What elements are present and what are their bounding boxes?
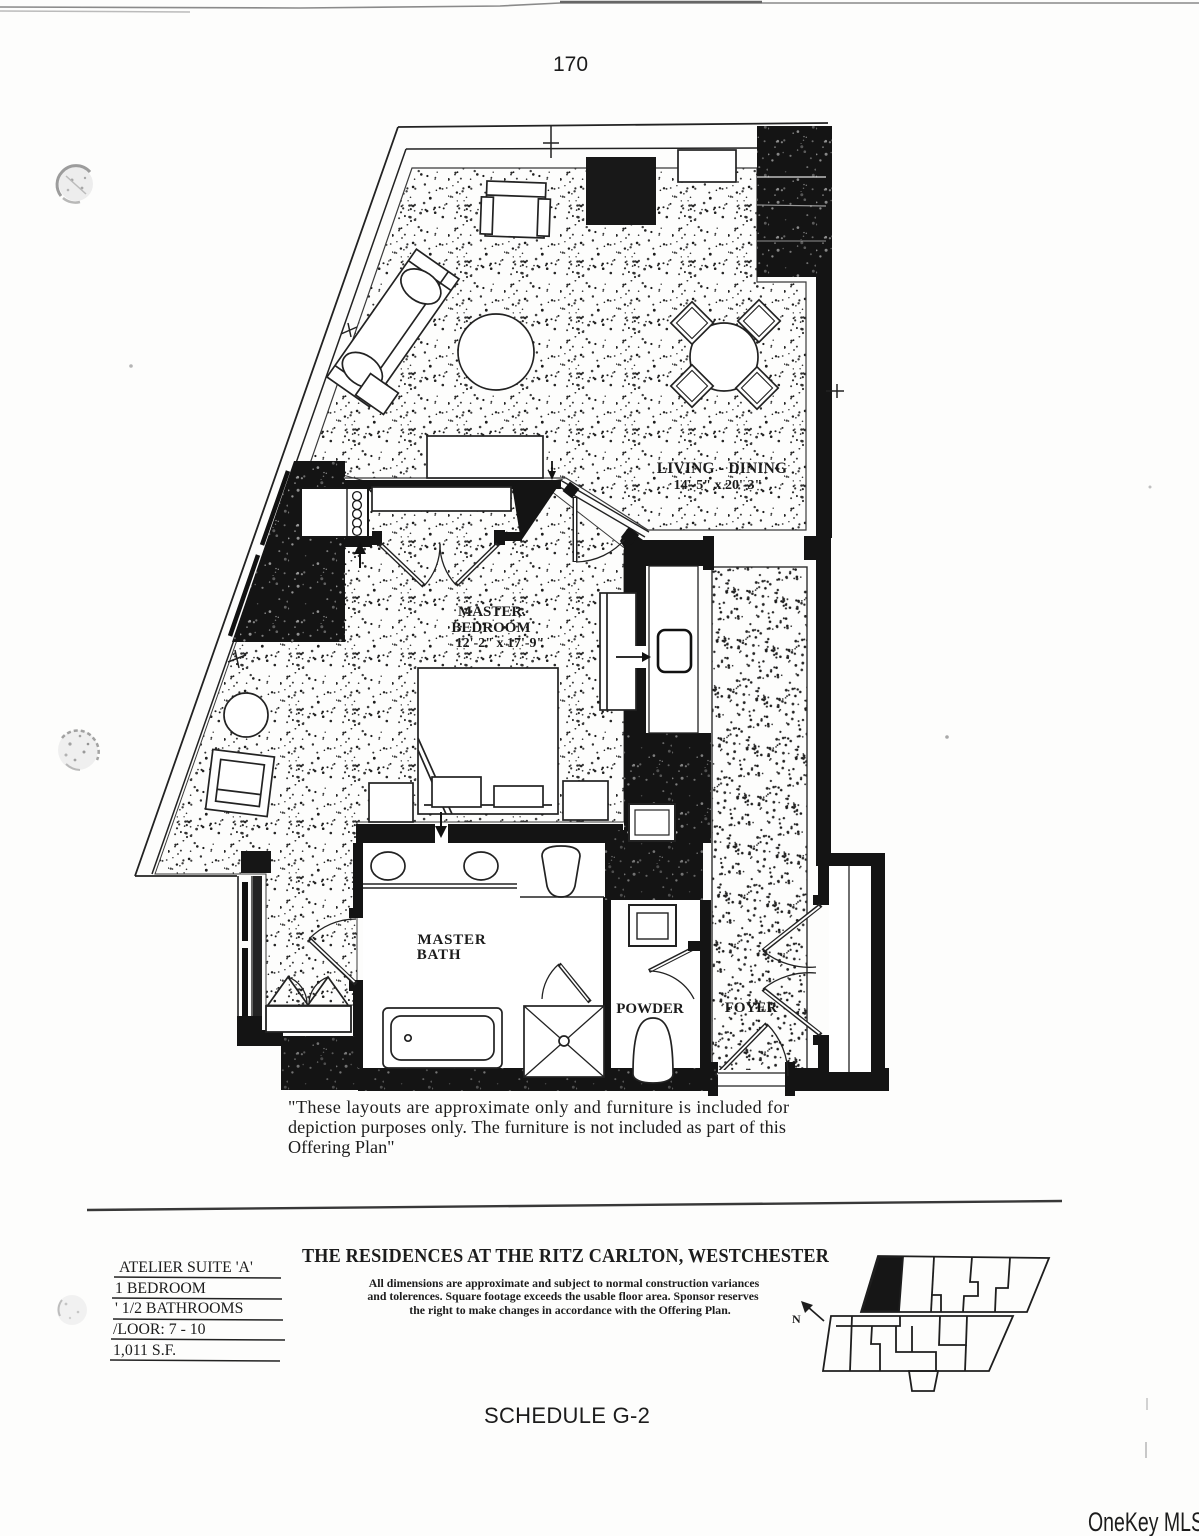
svg-text:"These layouts are approximate: "These layouts are approximate only and … xyxy=(288,1097,789,1117)
svg-text:ATELIER SUITE 'A': ATELIER SUITE 'A' xyxy=(119,1259,253,1276)
svg-text:POWDER: POWDER xyxy=(616,1001,684,1017)
svg-text:MASTER: MASTER xyxy=(418,932,487,948)
svg-text:All dimensions are approximate: All dimensions are approximate and subje… xyxy=(369,1276,760,1290)
svg-text:12'-2" x 17'-9": 12'-2" x 17'-9" xyxy=(456,636,545,651)
svg-text:OneKey MLS: OneKey MLS xyxy=(1088,1507,1199,1536)
svg-text:THE RESIDENCES AT THE RITZ CAR: THE RESIDENCES AT THE RITZ CARLTON, WEST… xyxy=(302,1245,829,1267)
svg-text:MASTER.: MASTER. xyxy=(458,604,526,620)
svg-text:1,011 S.F.: 1,011 S.F. xyxy=(113,1342,176,1359)
svg-text:the right to make changes in a: the right to make changes in accordance … xyxy=(409,1303,730,1317)
svg-text:Offering Plan": Offering Plan" xyxy=(288,1137,395,1157)
svg-text:BATH: BATH xyxy=(417,947,462,963)
svg-text:LIVING - DINING: LIVING - DINING xyxy=(657,460,787,477)
svg-text:14'-5" x 20'-3": 14'-5" x 20'-3" xyxy=(674,478,763,493)
svg-text:/LOOR: 7 - 10: /LOOR: 7 - 10 xyxy=(113,1321,206,1338)
svg-text:1 BEDROOM: 1 BEDROOM xyxy=(115,1280,206,1297)
svg-text:depiction purposes only. The: depiction purposes only. The furniture i… xyxy=(288,1117,786,1137)
svg-text:FOYER: FOYER xyxy=(725,1000,778,1016)
svg-text:' 1/2 BATHROOMS: ' 1/2 BATHROOMS xyxy=(115,1300,243,1317)
svg-text:N: N xyxy=(792,1312,801,1326)
svg-text:BEDROOM: BEDROOM xyxy=(451,620,530,636)
svg-text:170: 170 xyxy=(553,53,588,76)
svg-text:and tolerences. Square footag: and tolerences. Square footage exceeds t… xyxy=(367,1289,759,1303)
svg-text:SCHEDULE G-2: SCHEDULE G-2 xyxy=(484,1403,650,1428)
